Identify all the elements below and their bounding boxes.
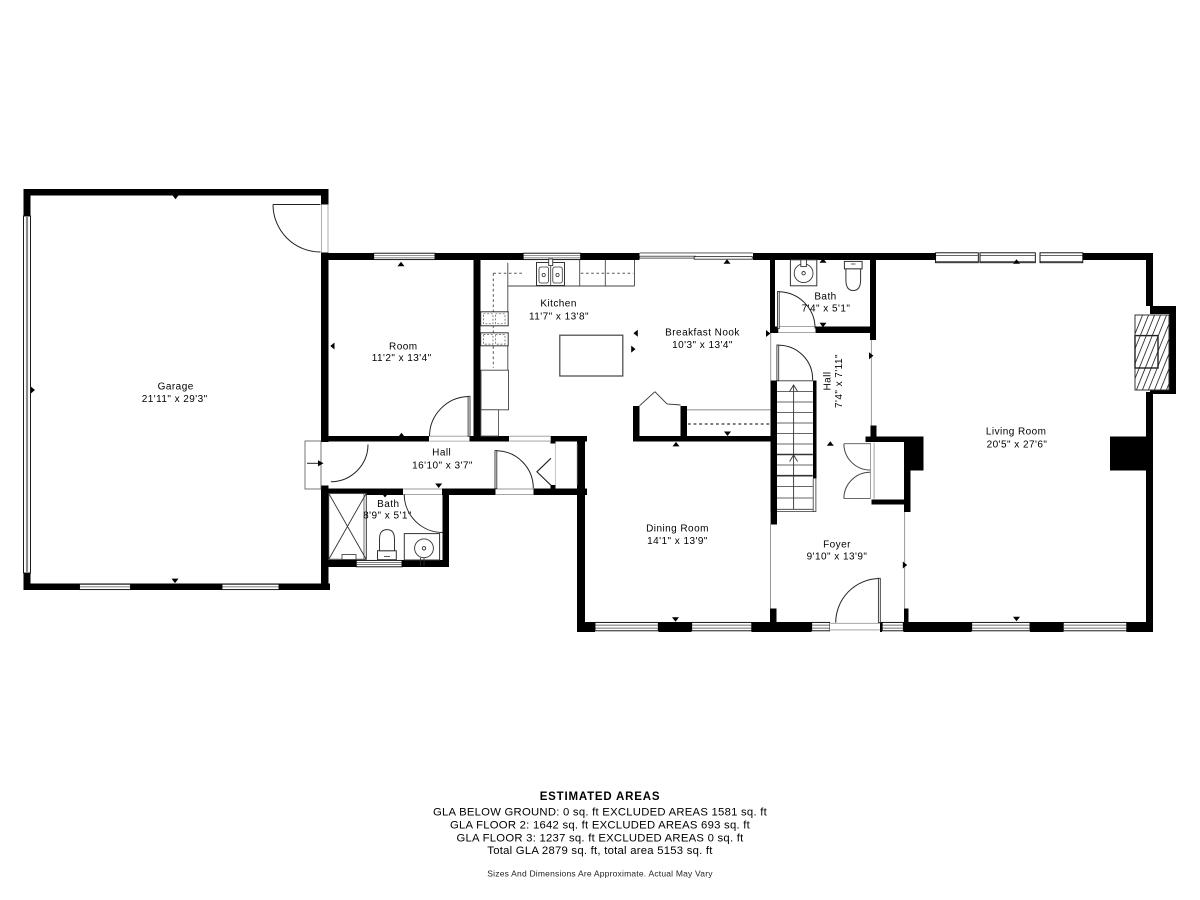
svg-text:Hall: Hall [432, 448, 451, 459]
svg-text:Sizes And Dimensions Are Appro: Sizes And Dimensions Are Approximate. Ac… [487, 869, 713, 879]
svg-text:GLA BELOW GROUND: 0 sq. ft EXC: GLA BELOW GROUND: 0 sq. ft EXCLUDED AREA… [433, 807, 768, 819]
svg-text:GLA FLOOR 3: 1237 sq. ft EXCLU: GLA FLOOR 3: 1237 sq. ft EXCLUDED AREAS … [456, 832, 744, 844]
svg-text:7'4" x 7'11": 7'4" x 7'11" [834, 354, 845, 408]
svg-text:11'7" x 13'8": 11'7" x 13'8" [529, 311, 589, 322]
svg-text:9'10" x 13'9": 9'10" x 13'9" [807, 552, 868, 563]
svg-text:Bath: Bath [814, 292, 836, 303]
svg-text:ESTIMATED AREAS: ESTIMATED AREAS [540, 791, 661, 803]
svg-text:21'11" x 29'3": 21'11" x 29'3" [142, 394, 208, 405]
svg-text:Total GLA 2879 sq. ft, total a: Total GLA 2879 sq. ft, total area 5153 s… [487, 845, 713, 857]
svg-text:10'3" x 13'4": 10'3" x 13'4" [672, 340, 733, 351]
svg-text:Bath: Bath [377, 499, 399, 510]
svg-text:7'4" x 5'1": 7'4" x 5'1" [802, 304, 851, 315]
svg-text:Foyer: Foyer [823, 540, 851, 551]
svg-text:8'9" x 5'1": 8'9" x 5'1" [363, 511, 412, 522]
svg-text:Hall: Hall [822, 371, 833, 390]
svg-text:Kitchen: Kitchen [540, 299, 577, 310]
svg-text:Dining Room: Dining Room [646, 524, 709, 535]
svg-text:GLA FLOOR 2: 1642 sq. ft EXCLU: GLA FLOOR 2: 1642 sq. ft EXCLUDED AREAS … [450, 819, 751, 831]
svg-text:Room: Room [389, 342, 417, 353]
svg-text:14'1" x 13'9": 14'1" x 13'9" [647, 536, 708, 547]
svg-text:Living Room: Living Room [986, 427, 1047, 438]
svg-text:Breakfast Nook: Breakfast Nook [665, 328, 740, 339]
svg-text:Garage: Garage [158, 382, 194, 393]
svg-text:11'2" x 13'4": 11'2" x 13'4" [372, 353, 432, 364]
svg-text:20'5" x 27'6": 20'5" x 27'6" [987, 440, 1048, 451]
svg-text:16'10" x 3'7": 16'10" x 3'7" [412, 461, 473, 472]
